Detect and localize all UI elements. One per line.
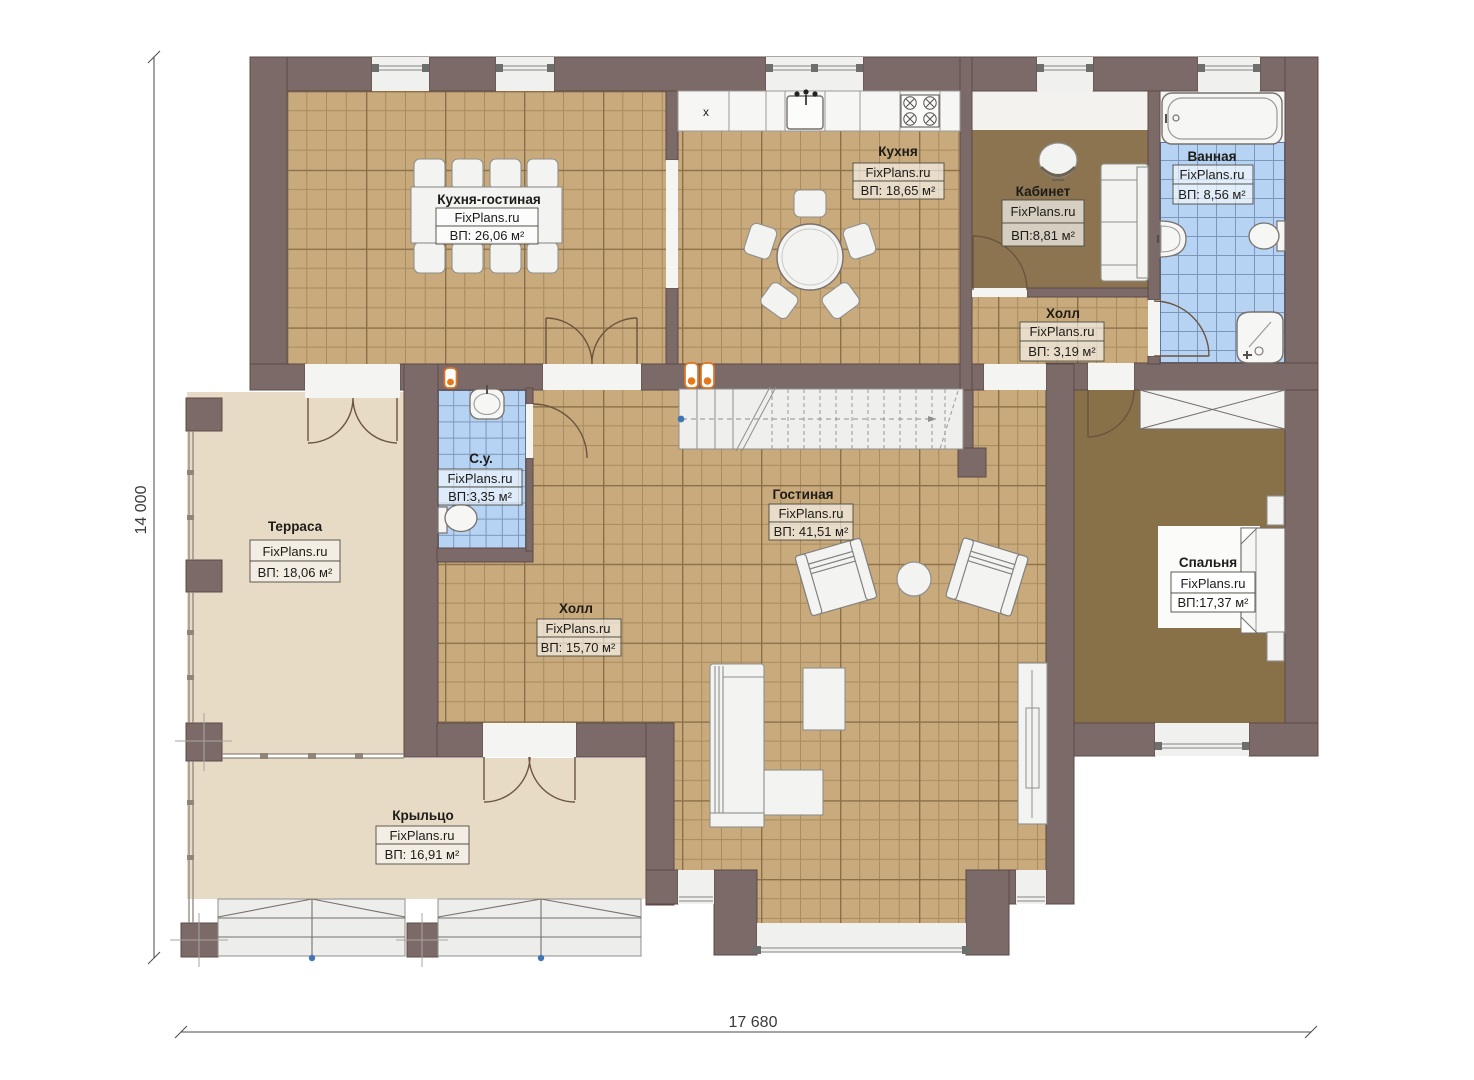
svg-text:С.у.: С.у.	[469, 451, 493, 466]
svg-text:FixPlans.ru: FixPlans.ru	[454, 210, 519, 225]
svg-text:Кабинет: Кабинет	[1016, 184, 1071, 199]
svg-text:Холл: Холл	[559, 601, 593, 616]
svg-text:ВП: 26,06 м²: ВП: 26,06 м²	[450, 228, 525, 243]
svg-text:FixPlans.ru: FixPlans.ru	[1029, 324, 1094, 339]
svg-text:Спальня: Спальня	[1179, 555, 1237, 570]
svg-text:ВП: 15,70 м²: ВП: 15,70 м²	[541, 640, 616, 655]
svg-text:Холл: Холл	[1046, 306, 1080, 321]
svg-text:ВП: 41,51 м²: ВП: 41,51 м²	[774, 524, 849, 539]
svg-text:FixPlans.ru: FixPlans.ru	[447, 471, 512, 486]
svg-text:Ванная: Ванная	[1188, 149, 1237, 164]
svg-text:14 000: 14 000	[133, 485, 150, 534]
svg-text:ВП: 18,65 м²: ВП: 18,65 м²	[861, 183, 936, 198]
svg-text:ВП: 8,56 м²: ВП: 8,56 м²	[1178, 187, 1246, 202]
svg-text:FixPlans.ru: FixPlans.ru	[865, 165, 930, 180]
svg-text:Терраса: Терраса	[268, 519, 323, 534]
svg-text:x: x	[703, 105, 709, 119]
svg-text:ВП:8,81 м²: ВП:8,81 м²	[1011, 228, 1075, 243]
svg-text:FixPlans.ru: FixPlans.ru	[1180, 576, 1245, 591]
svg-text:FixPlans.ru: FixPlans.ru	[778, 506, 843, 521]
svg-text:ВП:17,37 м²: ВП:17,37 м²	[1177, 595, 1249, 610]
svg-text:FixPlans.ru: FixPlans.ru	[262, 544, 327, 559]
svg-text:FixPlans.ru: FixPlans.ru	[1010, 204, 1075, 219]
svg-text:Гостиная: Гостиная	[772, 487, 833, 502]
svg-text:ВП:3,35 м²: ВП:3,35 м²	[448, 489, 512, 504]
svg-text:17 680: 17 680	[729, 1014, 778, 1031]
svg-text:FixPlans.ru: FixPlans.ru	[1179, 167, 1244, 182]
svg-text:Кухня-гостиная: Кухня-гостиная	[437, 192, 540, 207]
svg-text:ВП: 18,06 м²: ВП: 18,06 м²	[258, 565, 333, 580]
svg-text:ВП: 3,19 м²: ВП: 3,19 м²	[1028, 344, 1096, 359]
svg-text:Крыльцо: Крыльцо	[392, 808, 453, 823]
svg-text:Кухня: Кухня	[878, 144, 917, 159]
svg-text:ВП: 16,91 м²: ВП: 16,91 м²	[385, 847, 460, 862]
svg-text:FixPlans.ru: FixPlans.ru	[389, 828, 454, 843]
svg-text:FixPlans.ru: FixPlans.ru	[545, 621, 610, 636]
